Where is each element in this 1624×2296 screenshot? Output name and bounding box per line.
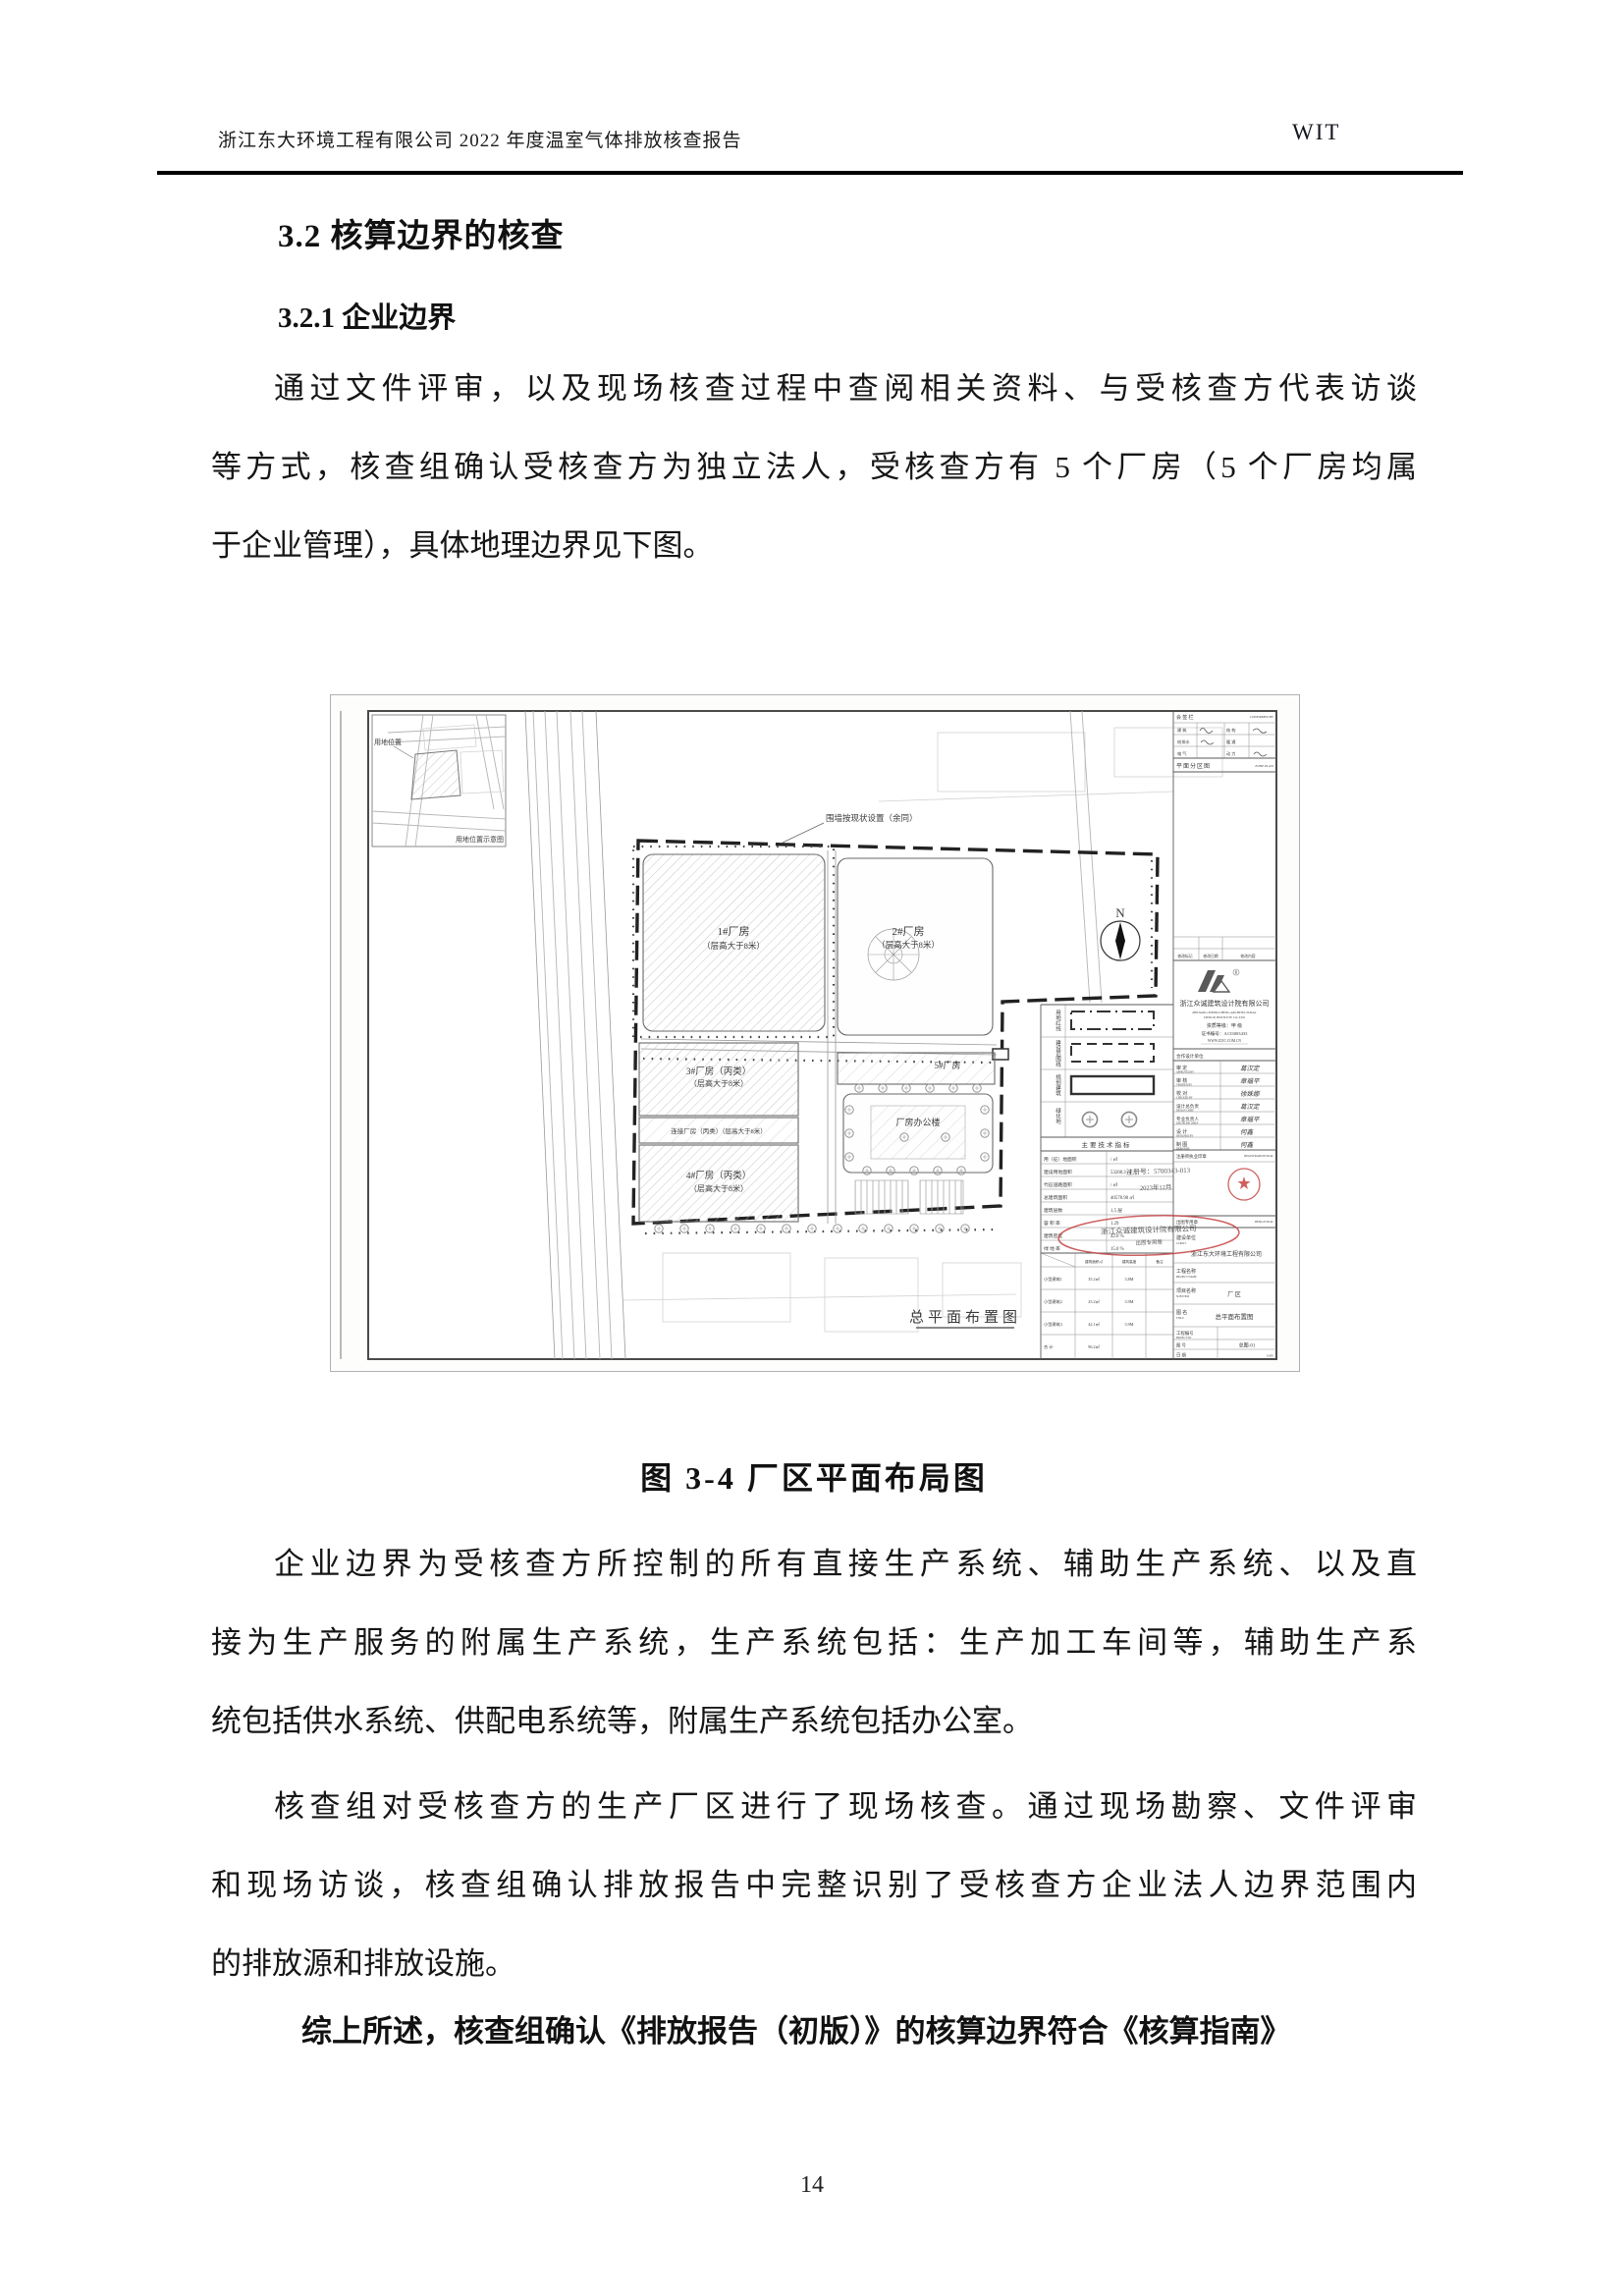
inset-site-parcel: [411, 750, 460, 799]
sign-role-en: CHECKED BY: [1176, 1097, 1193, 1100]
sign-name: 章福平: [1240, 1077, 1261, 1085]
building-5: 5#厂房: [838, 1053, 995, 1084]
building-2-label: 2#厂房: [893, 925, 925, 938]
subitem-label-en: SUB ITEM: [1176, 1295, 1189, 1298]
sign-role-en: DISCIPLINE CHIEF: [1176, 1122, 1199, 1125]
building-3-label: 3#厂房（丙类）: [686, 1066, 752, 1077]
office-building: 厂房办公楼: [843, 1094, 993, 1173]
wall-note: 围墙按现状设置（余同）: [826, 813, 918, 823]
reg-seal-label-en: REGISTRATION SEAL: [1244, 1154, 1273, 1158]
building-4: 4#厂房（丙类） （层高大于8米）: [639, 1145, 798, 1222]
company-name-en: ZHEJIANG ZHONGCHENG ARCHITECTURAL: [1192, 1011, 1257, 1014]
tech-subrow: 合 计: [1044, 1343, 1053, 1350]
sign-name: 葛汉定: [1240, 1065, 1261, 1072]
tech-row-value: 15.0 %: [1110, 1247, 1124, 1252]
building-3-sublabel: （层高大于8米）: [689, 1078, 748, 1088]
tech-subrow: 35.2㎡: [1088, 1276, 1100, 1282]
tech-row-label: 绿 地 率: [1044, 1245, 1060, 1252]
legend-label: 规划建筑: [1055, 1073, 1061, 1098]
drawing-title-value: 总平面布置图: [1216, 1312, 1254, 1321]
body-line: 核查组对受核查方的生产厂区进行了现场核查。通过现场勘察、文件评审: [211, 1768, 1417, 1846]
zone-plan-label-en: ZONE PLAN: [1255, 764, 1273, 768]
legend-label: 绿化地: [1055, 1107, 1061, 1124]
header-logo-text: WIT: [1292, 120, 1340, 145]
tech-subrow: 96.2㎡: [1088, 1343, 1100, 1349]
client-label-en: CLIENT: [1176, 1242, 1186, 1245]
building-1-label: 1#厂房: [718, 925, 750, 938]
drawing-title-label: 图 名: [1176, 1309, 1187, 1316]
grid-label: 电 气: [1177, 750, 1187, 756]
tech-subrow: 小型建筑1: [1044, 1276, 1062, 1283]
north-letter: N: [1115, 905, 1125, 920]
confirm-label: 会 签 栏: [1176, 714, 1194, 721]
sign-name: 何鑫: [1240, 1141, 1255, 1149]
legend-label: 用地红线: [1055, 1010, 1061, 1032]
link-building: 连接厂房（丙类）（层高大于8米）: [639, 1118, 798, 1143]
section-heading: 3.2 核算边界的核查: [278, 209, 565, 256]
body-line: 通过文件评审，以及现场核查过程中查阅相关资料、与受核查方代表访谈: [211, 350, 1417, 428]
tech-subrow: 小型建筑3: [1044, 1321, 1062, 1328]
sign-name: 葛汉定: [1240, 1103, 1261, 1111]
body-line: 等方式，核查组确认受核查方为独立法人，受核查方有 5 个厂房（5 个厂房均属: [211, 428, 1417, 507]
company-grade: 资质等级：甲 级: [1207, 1022, 1242, 1029]
document-page: 浙江东大环境工程有限公司 2022 年度温室气体排放核查报告 WIT 3.2 核…: [0, 0, 1624, 2296]
drawing-title-label-en: TITLE: [1176, 1317, 1184, 1320]
building-1-sublabel: （层高大于8米）: [702, 941, 765, 951]
tech-subheader: 建筑面积㎡: [1085, 1259, 1103, 1264]
page-number: 14: [0, 2172, 1624, 2199]
project-no-label: 工程编号: [1176, 1330, 1194, 1337]
tech-row-label: 建设用地面积: [1044, 1169, 1072, 1175]
paragraph-3: 核查组对受核查方的生产厂区进行了现场核查。通过现场勘察、文件评审 和现场访谈，核…: [211, 1768, 1417, 2003]
company-website: WWW.ZJZC.COM.CN: [1208, 1039, 1241, 1043]
figure-3-4-site-plan: 用地位置 用地位置示意图 围墙按现状设置（余同）: [329, 693, 1301, 1373]
body-line: 的排放源和排放设施。: [211, 1925, 1417, 2003]
tech-subrow: 25.2㎡: [1088, 1298, 1100, 1304]
grid-label: 结 构: [1226, 727, 1235, 734]
grid-label: 建 筑: [1177, 727, 1187, 734]
tech-row-value: 1,5 层: [1110, 1208, 1122, 1214]
sign-role-en: DESIGNED BY: [1176, 1135, 1193, 1138]
grid-label: 给排水: [1177, 738, 1190, 745]
subitem-value: 厂 区: [1227, 1291, 1241, 1298]
project-label: 工程名称: [1176, 1268, 1196, 1275]
body-line: 和现场访谈，核查组确认排放报告中完整识别了受核查方企业法人边界范围内: [211, 1846, 1417, 1925]
rev-header: 修改日期: [1203, 954, 1218, 958]
tech-subrow: 3.9M: [1125, 1322, 1134, 1327]
client-label: 建设单位: [1176, 1234, 1196, 1241]
design-seal-label-en: DESIGN SEAL: [1255, 1220, 1273, 1224]
client-value: 浙江东大环境工程有限公司: [1191, 1250, 1262, 1258]
tech-row-label: 容 积 率: [1044, 1220, 1060, 1227]
legend-label: 建设范围线: [1055, 1039, 1061, 1067]
sign-role-en: VERIFIED BY: [1176, 1084, 1192, 1087]
date-label-en: DATE: [1267, 1355, 1273, 1358]
building-4-sublabel: （层高大于8米）: [689, 1183, 748, 1193]
body-line: 于企业管理），具体地理边界见下图。: [211, 507, 1417, 585]
dwg-no-value: 总图-01: [1239, 1342, 1256, 1349]
sign-name: 何鑫: [1240, 1128, 1255, 1136]
office-label: 厂房办公楼: [895, 1117, 940, 1127]
grid-label: 动 力: [1226, 750, 1235, 757]
building-5-label: 5#厂房: [934, 1060, 960, 1070]
project-no-label-en: PROJECT NO: [1176, 1337, 1191, 1339]
inset-caption: 用地位置示意图: [456, 835, 504, 844]
company-name: 浙江众诚建筑设计院有限公司: [1180, 999, 1270, 1008]
tech-subrow: 42.1㎡: [1088, 1321, 1100, 1327]
location-inset-map: 用地位置 用地位置示意图: [372, 715, 506, 847]
tech-subheader: 备注: [1156, 1259, 1164, 1264]
header-title: 浙江东大环境工程有限公司 2022 年度温室气体排放核查报告: [218, 126, 742, 152]
building-1: 1#厂房 （层高大于8米）: [643, 854, 825, 1031]
tech-row-label: 代征道路面积: [1044, 1181, 1072, 1188]
tech-row-value: / ㎡: [1110, 1181, 1118, 1188]
rev-header: 修改内容: [1240, 954, 1255, 958]
svg-text:R: R: [1235, 970, 1238, 975]
paragraph-1: 通过文件评审，以及现场核查过程中查阅相关资料、与受核查方代表访谈 等方式，核查组…: [211, 350, 1417, 585]
plan-caption: 总平面布置图: [909, 1309, 1021, 1326]
link-building-label: 连接厂房（丙类）（层高大于8米）: [671, 1126, 767, 1135]
tech-row-label: 用（征）地面积: [1044, 1156, 1077, 1163]
sign-role-en: DRAWN BY: [1176, 1148, 1190, 1151]
sign-role-en: APPROVED BY: [1176, 1071, 1194, 1074]
coop-label: 合作设计单位: [1176, 1053, 1204, 1060]
building-3: 3#厂房（丙类） （层高大于8米）: [639, 1043, 798, 1116]
body-line: 统包括供水系统、供配电系统等，附属生产系统包括办公室。: [211, 1682, 1417, 1761]
conclusion-line: 综上所述，核查组确认《排放报告（初版）》的核算边界符合《核算指南》: [211, 1993, 1458, 2071]
building-2-sublabel: （层高大于8米）: [877, 940, 940, 950]
inset-site-label: 用地位置: [374, 738, 402, 746]
building-4-label: 4#厂房（丙类）: [686, 1170, 752, 1181]
tech-subrow: 小型建筑2: [1044, 1298, 1062, 1305]
zone-plan-label: 平面分区图: [1176, 762, 1211, 770]
body-line: 企业边界为受核查方所控制的所有直接生产系统、辅助生产系统、以及直: [211, 1525, 1417, 1604]
reg-seal-label: 注册师执业印章: [1176, 1153, 1207, 1160]
tech-subrow: 3.8M: [1125, 1277, 1134, 1282]
subsection-heading: 3.2.1 企业边界: [278, 295, 456, 336]
grid-label: 暖 通: [1226, 738, 1236, 745]
tech-row-value: / ㎡: [1110, 1156, 1118, 1163]
body-line: 接为生产服务的附属生产系统，生产系统包括：生产加工车间等，辅助生产系: [211, 1604, 1417, 1682]
subitem-label: 项目名称: [1176, 1287, 1196, 1294]
sign-name: 章福平: [1240, 1116, 1261, 1123]
tech-row-label: 总建筑面积: [1044, 1194, 1067, 1201]
project-label-en: PROJECT NAME: [1176, 1276, 1197, 1279]
header-rule: [157, 171, 1463, 175]
building-2: 2#厂房 （层高大于8米）: [838, 858, 993, 1035]
tech-table-title: 主要技术指标: [1082, 1140, 1132, 1149]
tech-row-label: 建筑层数: [1044, 1207, 1062, 1214]
tech-subheader: 建筑高度: [1122, 1259, 1137, 1264]
paragraph-2: 企业边界为受核查方所控制的所有直接生产系统、辅助生产系统、以及直 接为生产服务的…: [211, 1525, 1417, 1761]
sign-name: 徐姝娜: [1240, 1090, 1261, 1098]
company-cert: 证书编号：A133003433: [1202, 1030, 1249, 1037]
rev-header: 修改标记: [1177, 954, 1192, 958]
tech-row-value: 40578.98 ㎡: [1110, 1194, 1134, 1201]
figure-caption: 图 3-4 厂区平面布局图: [211, 1439, 1417, 1517]
sign-role-en: DESIGN CHIEF: [1176, 1110, 1194, 1113]
confirm-label-en: CONFIRMED BY: [1250, 715, 1274, 719]
tech-subrow: 3.9M: [1125, 1299, 1134, 1304]
